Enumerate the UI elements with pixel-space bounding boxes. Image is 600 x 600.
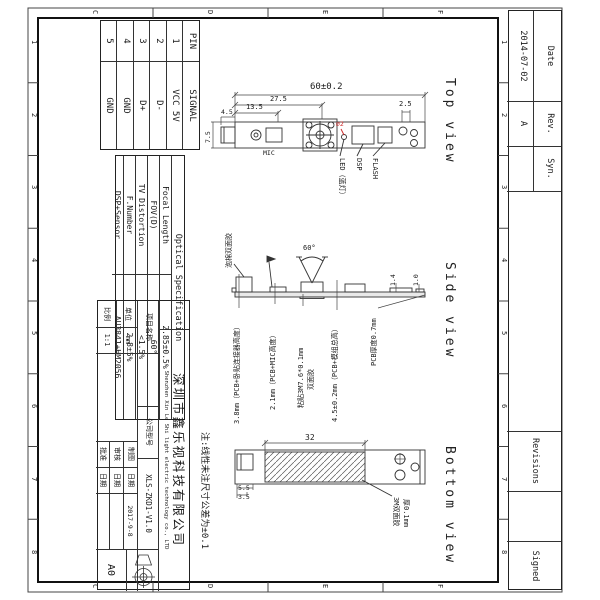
bottom-view-title: Bottom view xyxy=(442,446,456,565)
grid-number: 5 xyxy=(29,331,37,335)
callout-pcb-thickness: PCB厚度0.7mm xyxy=(371,318,379,366)
dim-connector: 4.5 xyxy=(221,109,233,116)
top-view-title: Top view xyxy=(442,78,456,165)
label-foam-tape: 泡棉双面胶 xyxy=(226,233,234,268)
grid-number: 6 xyxy=(499,404,507,408)
label-tape-line2: 厚0.1mm xyxy=(401,499,409,527)
label-flash: FLASH xyxy=(370,158,378,179)
dim-mic-center: 13.5 xyxy=(246,104,263,112)
grid-letter: C xyxy=(90,10,98,14)
bottom-view-linework xyxy=(235,440,425,498)
date-label: 日期 xyxy=(112,467,120,493)
grid-number: 7 xyxy=(29,477,37,481)
grid-letter: E xyxy=(320,584,328,588)
dim-tape-width: 32 xyxy=(305,434,315,443)
rev-label: Rev. xyxy=(545,101,554,146)
grid-number: 2 xyxy=(499,113,507,117)
drawn-date: 2017-9-8 xyxy=(126,493,133,549)
date-label: 日期 xyxy=(126,467,134,493)
grid-letter: F xyxy=(435,10,443,14)
date-label: 日期 xyxy=(98,467,106,493)
grid-letter: F xyxy=(435,584,443,588)
dim-b2: 3.5 xyxy=(238,494,250,501)
checked-label: 审核 xyxy=(112,441,120,467)
signal-header: SIGNAL xyxy=(184,61,200,149)
tolerance-note: 注:线性未注尺寸公差为±0.1 xyxy=(198,432,208,549)
label-mic: MIC xyxy=(263,150,275,157)
dim-board-width: 7.5 xyxy=(205,131,212,143)
spec-label: Focal Length xyxy=(160,156,172,274)
label-tape-line1: 3M双面胶 xyxy=(391,497,399,526)
grid-number: 2 xyxy=(29,113,37,117)
spec-label: TV Distortion xyxy=(136,156,148,274)
grid-number: 4 xyxy=(29,258,37,262)
unit-label: 单位 xyxy=(123,301,131,327)
signal-cell: VCC 5V xyxy=(167,61,184,149)
model-value: XLS-ZKD1-V1.0 xyxy=(144,458,152,549)
grid-number: 5 xyxy=(499,331,507,335)
pin-cell: 4 xyxy=(118,21,135,61)
signal-cell: D- xyxy=(151,61,168,149)
scale-label: 比例 xyxy=(102,301,110,327)
grid-letter: D xyxy=(205,584,213,588)
dim-overall-length: 60±0.2 xyxy=(310,83,343,93)
dim-h1: 1.4 xyxy=(390,274,397,286)
callout-total-height: 4.5±0.2mm（PCB+模组总高） xyxy=(332,325,340,422)
dim-hole-offset: 2.5 xyxy=(399,101,412,109)
label-led: LED（蓝灯） xyxy=(337,158,345,199)
side-view-title: Side view xyxy=(442,262,456,359)
revisions-title: Revisions xyxy=(530,431,539,491)
signal-cell: D+ xyxy=(134,61,151,149)
spec-label: DSP+Sensor xyxy=(112,156,124,274)
revision-strip: Date 2014-07-02 Rev. A Syn. Revisions Si… xyxy=(508,10,562,590)
pin-cell: 2 xyxy=(151,21,168,61)
rev-date-value: 2014-07-02 xyxy=(518,11,527,101)
approved-label: 批准 xyxy=(98,441,106,467)
grid-number: 6 xyxy=(29,404,37,408)
pin-header: PIN xyxy=(184,21,200,61)
title-block: 深圳市鑫乐视科技有限公司 Shenzhen Xin Le Shi light e… xyxy=(97,300,190,590)
grid-number: 8 xyxy=(499,550,507,554)
drawing-sheet: 1 2 3 4 5 6 7 8 1 2 3 4 5 6 7 8 C D E F … xyxy=(0,0,600,600)
pin-table: PIN SIGNAL 1 VCC 5V 2 D- 3 D+ 4 GND 5 GN… xyxy=(100,20,200,150)
rev-date-label: Date xyxy=(545,11,554,101)
company-name-cn: 深圳市鑫乐视科技有限公司 xyxy=(171,331,185,589)
drawn-label: 制图 xyxy=(126,441,134,467)
sheet-size: A0 xyxy=(105,549,116,591)
signal-cell: GND xyxy=(118,61,135,149)
company-name-en: Shenzhen Xin Le Shi light electric techn… xyxy=(163,331,169,589)
grid-letter: E xyxy=(320,10,328,14)
label-dsp: DSP xyxy=(354,158,362,171)
pin-cell: 1 xyxy=(167,21,184,61)
dim-h2: 1.0 xyxy=(413,274,420,286)
top-view-linework xyxy=(211,92,428,156)
spec-label: F.Number xyxy=(124,156,136,274)
grid-number: 8 xyxy=(29,550,37,554)
callout-connector-height: 3.8mm（PCB+卧贴连接器高度） xyxy=(234,323,242,424)
grid-number: 1 xyxy=(29,40,37,44)
dim-led-diameter: ⌀2 xyxy=(336,121,344,128)
scale-value: 1:1 xyxy=(102,327,110,353)
grid-number: 4 xyxy=(499,258,507,262)
signal-cell: GND xyxy=(101,61,118,149)
grid-number: 3 xyxy=(29,185,37,189)
grid-number: 3 xyxy=(499,185,507,189)
dim-b1: 5.5 xyxy=(238,485,250,492)
spec-label: FOV(D) xyxy=(148,156,160,274)
grid-letter: D xyxy=(205,10,213,14)
callout-tape-line1: 粘贴3M7.6*0.1mm xyxy=(298,348,306,408)
callout-tape-line2: 双面胶 xyxy=(308,369,316,390)
unit-value: mm xyxy=(123,327,131,353)
pin-cell: 3 xyxy=(134,21,151,61)
projection-symbol-icon xyxy=(130,552,157,588)
grid-number: 7 xyxy=(499,477,507,481)
project-name-label: 项目名称 xyxy=(144,301,152,353)
dim-fov-angle: 60° xyxy=(303,245,316,253)
callout-mic-height: 2.1mm（PCB+MIC高度） xyxy=(270,331,278,410)
pin-cell: 5 xyxy=(101,21,118,61)
model-label: 公司型号 xyxy=(144,406,152,458)
rev-value: A xyxy=(518,101,527,146)
dim-lens-center: 27.5 xyxy=(270,96,287,104)
syn-label: Syn. xyxy=(545,146,554,191)
signed-label: Signed xyxy=(530,541,539,591)
grid-number: 1 xyxy=(499,40,507,44)
